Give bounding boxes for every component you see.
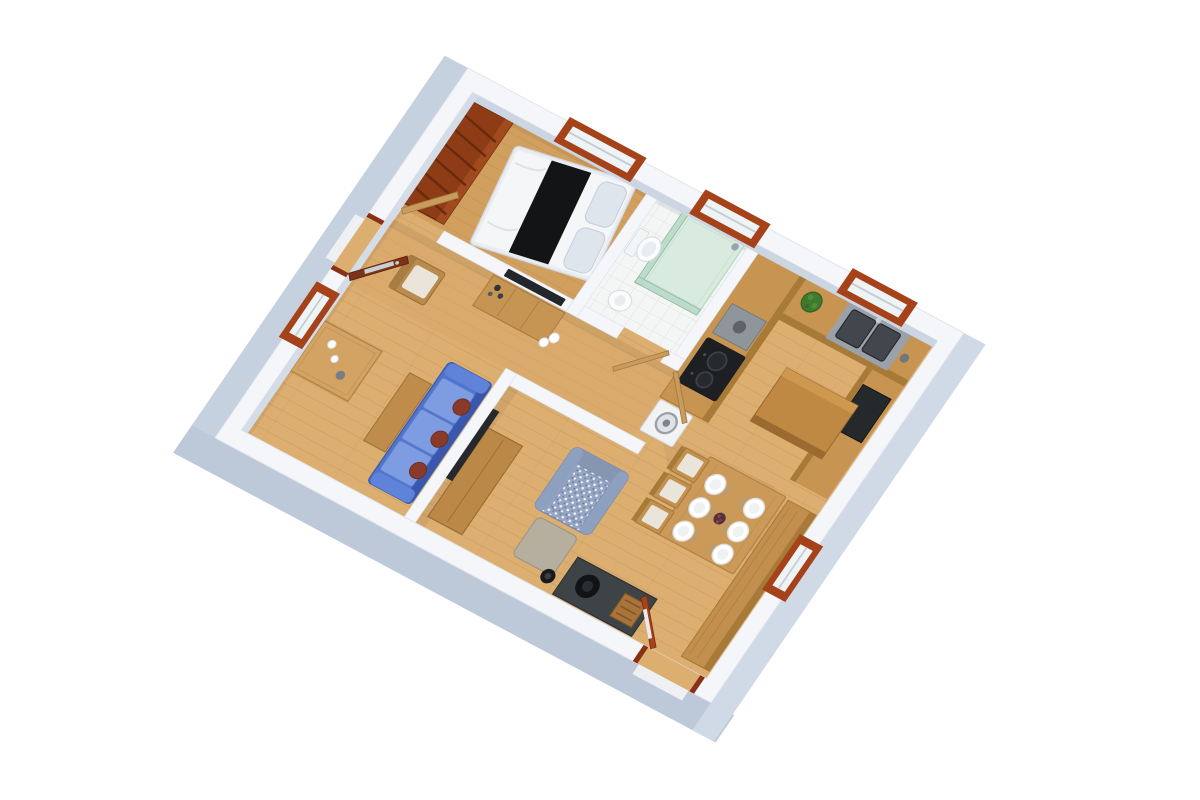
floor-plan-stage — [0, 0, 1200, 800]
floor-plan — [173, 52, 990, 743]
floor-plan-canvas — [0, 0, 1200, 800]
